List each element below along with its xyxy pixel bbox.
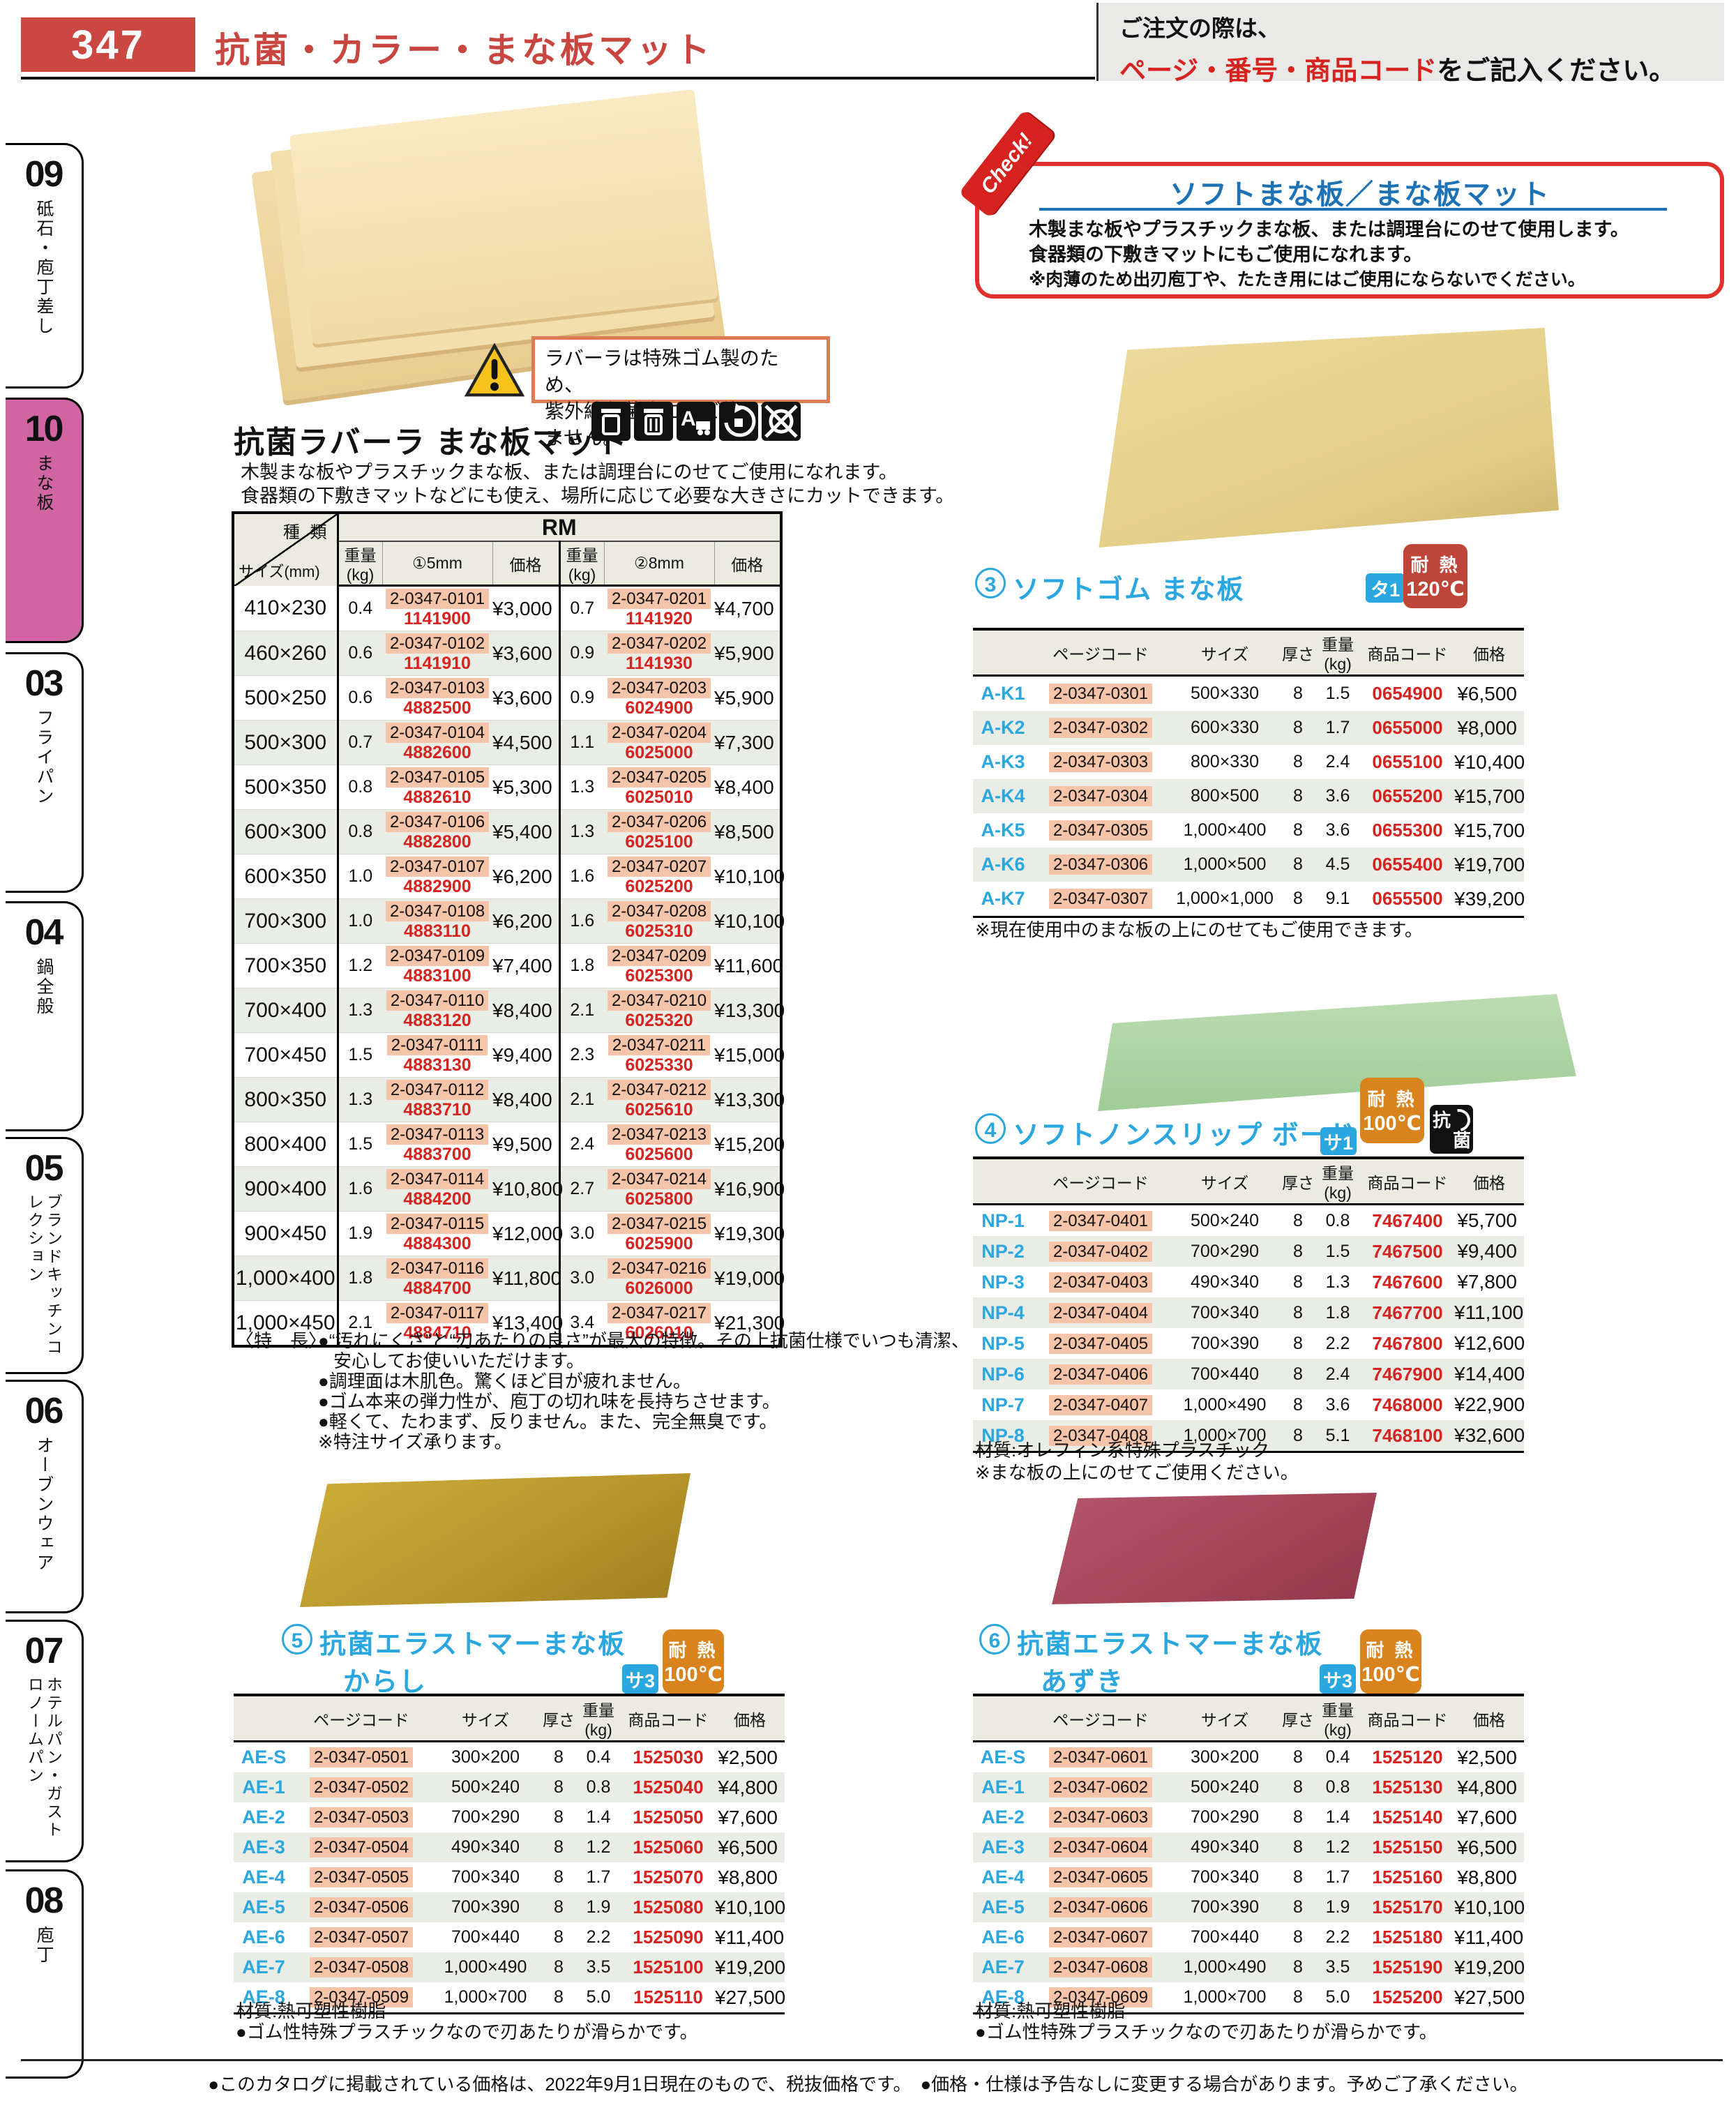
rubberlar-description: 木製まな板やプラスチックまな板、または調理台にのせてご使用になれます。 食器類の… [241, 460, 954, 508]
code-cell-8mm: 2-0347-02136025600 [604, 1122, 714, 1167]
size-row: 900×450 1.9 2-0347-01154884300 ¥12,000 3… [233, 1212, 781, 1256]
code-cell-8mm: 2-0347-02011141920 [604, 586, 714, 631]
azuki-table: ページコード サイズ 厚さ 重量(kg) 商品コード 価格 AE-S 2-034… [973, 1694, 1525, 2014]
section5-subtitle: からし [343, 1660, 427, 1698]
product-row: AE-7 2-0347-0508 1,000×490 8 3.5 1525100… [234, 1952, 785, 1982]
code-cell-5mm: 2-0347-01154884300 [382, 1212, 492, 1256]
size-row: 600×350 1.0 2-0347-01074882900 ¥6,200 1.… [233, 854, 781, 899]
heat-resistant-100-badge: 耐 熱 100℃ [663, 1629, 724, 1694]
size-row: 700×300 1.0 2-0347-01084883110 ¥6,200 1.… [233, 899, 781, 944]
code-cell-8mm: 2-0347-02066025100 [604, 810, 714, 854]
code-cell-8mm: 2-0347-02086025310 [604, 899, 714, 944]
order-note-line2: ページ・番号・商品コードをご記入ください。 [1119, 49, 1724, 87]
no-uv-recycle-icon [762, 402, 801, 441]
sidebar-tab-06: 06 オーブンウェア [6, 1380, 84, 1613]
product-row: AE-S 2-0347-0601 300×200 8 0.4 1525120 ¥… [973, 1742, 1524, 1773]
product-row: AE-4 2-0347-0505 700×340 8 1.7 1525070 ¥… [234, 1862, 785, 1892]
sidebar-tab-09: 09 砥石・庖丁差し [6, 143, 84, 389]
code-cell-5mm: 2-0347-01124883710 [382, 1078, 492, 1122]
section4-title: ソフトノンスリップ ボード [1013, 1113, 1356, 1152]
code-cell-5mm: 2-0347-01011141900 [382, 586, 492, 631]
code-cell-8mm: 2-0347-02156025900 [604, 1212, 714, 1256]
product-row: NP-7 2-0347-0407 1,000×490 8 3.6 7468000… [973, 1389, 1524, 1420]
order-note-box: ご注文の際は、 ページ・番号・商品コードをご記入ください。 [1096, 3, 1724, 81]
product-row: AE-4 2-0347-0605 700×340 8 1.7 1525160 ¥… [973, 1862, 1524, 1892]
column-header-row: ページコード サイズ 厚さ 重量(kg) 商品コード 価格 [973, 1695, 1524, 1742]
karashi-table: ページコード サイズ 厚さ 重量(kg) 商品コード 価格 AE-S 2-034… [234, 1694, 786, 2014]
code-cell-8mm: 2-0347-02056025010 [604, 765, 714, 810]
product-row: AE-6 2-0347-0507 700×440 8 2.2 1525090 ¥… [234, 1922, 785, 1952]
features-list: 〈特 長〉 ●“汚れにくさ”と“刃あたりの良さ”が最大の特徴。その上抗菌仕様でい… [236, 1331, 969, 1452]
product-row: AE-3 2-0347-0504 490×340 8 1.2 1525060 ¥… [234, 1832, 785, 1862]
product-row: AE-3 2-0347-0604 490×340 8 1.2 1525150 ¥… [973, 1832, 1524, 1862]
column-header-row: ページコード サイズ 厚さ 重量(kg) 商品コード 価格 [973, 629, 1524, 676]
code-cell-5mm: 2-0347-01164884700 [382, 1256, 492, 1301]
nonslip-product-image [1088, 994, 1576, 1111]
product-row: A-K7 2-0347-0307 1,000×1,000 8 9.1 06555… [973, 882, 1524, 917]
product-row: AE-7 2-0347-0608 1,000×490 8 3.5 1525190… [973, 1952, 1524, 1982]
size-row: 500×300 0.7 2-0347-01044882600 ¥4,500 1.… [233, 721, 781, 765]
karashi-texture-note: ●ゴム性特殊プラスチックなので刃あたりが滑らかです。 [236, 2021, 698, 2043]
heat-resistant-100-badge: 耐 熱 100℃ [1360, 1078, 1424, 1143]
sidebar-tab-10-active: 10 まな板 [6, 398, 84, 643]
size-row: 700×400 1.3 2-0347-01104883120 ¥8,400 2.… [233, 988, 781, 1033]
svg-text:A: A [681, 407, 696, 430]
check-title-underline [1039, 208, 1667, 211]
code-cell-8mm: 2-0347-02096025300 [604, 944, 714, 988]
size-row: 500×350 0.8 2-0347-01054882610 ¥5,300 1.… [233, 765, 781, 810]
size-row: 700×350 1.2 2-0347-01094883100 ¥7,400 1.… [233, 944, 781, 988]
product-row: A-K4 2-0347-0304 800×500 8 3.6 0655200 ¥… [973, 779, 1524, 813]
code-cell-5mm: 2-0347-01144884200 [382, 1167, 492, 1212]
softgum-product-image [1085, 328, 1559, 548]
section3-title: ソフトゴム まな板 [1013, 568, 1245, 606]
nonslip-material-note: 材質:オレフィン系特殊プラスチック [975, 1440, 1269, 1461]
column-header-row: ページコード サイズ 厚さ 重量(kg) 商品コード 価格 [973, 1158, 1524, 1205]
product-row: NP-5 2-0347-0405 700×390 8 2.2 7467800 ¥… [973, 1328, 1524, 1359]
a-transport-icon: A [677, 402, 716, 441]
sorted-bin-icon [634, 402, 673, 441]
section6-subtitle: あずき [1041, 1660, 1124, 1698]
code-cell-8mm: 2-0347-02146025800 [604, 1167, 714, 1212]
footer-note: ●このカタログに掲載されている価格は、2022年9月1日現在のもので、税抜価格で… [0, 2070, 1736, 2096]
features-label: 〈特 長〉 [236, 1331, 318, 1452]
size-row: 800×400 1.5 2-0347-01134883700 ¥9,500 2.… [233, 1122, 781, 1167]
azuki-material-note: 材質:熱可塑性樹脂 [975, 2000, 1125, 2022]
karashi-material-note: 材質:熱可塑性樹脂 [236, 2000, 386, 2022]
code-cell-8mm: 2-0347-02046025000 [604, 721, 714, 765]
rubberlar-price-table: 種 類 サイズ(mm) RM 重量(kg) ①5mm 価格 重量(kg) ②8m… [232, 511, 784, 1348]
heat-resistant-100-badge: 耐 熱 100℃ [1360, 1629, 1421, 1694]
section6-title: 抗菌エラストマーまな板 [1017, 1622, 1323, 1661]
size-row: 410×230 0.4 2-0347-01011141900 ¥3,000 0.… [233, 586, 781, 631]
product-row: A-K5 2-0347-0305 1,000×400 8 3.6 0655300… [973, 813, 1524, 847]
series-header: RM [338, 513, 781, 541]
check-title: ソフトまな板／まな板マット [1116, 172, 1604, 212]
azuki-product-image [1052, 1493, 1377, 1604]
sidebar-tab-03: 03 フライパン [6, 652, 84, 893]
header-divider [21, 77, 1095, 80]
section3-number: 3 [975, 568, 1006, 598]
code-cell-5mm: 2-0347-01094883100 [382, 944, 492, 988]
azuki-texture-note: ●ゴム性特殊プラスチックなので刃あたりが滑らかです。 [975, 2021, 1437, 2043]
product-row: NP-4 2-0347-0404 700×340 8 1.8 7467700 ¥… [973, 1297, 1524, 1328]
catalog-page: 347 抗菌・カラー・まな板マット ご注文の際は、 ページ・番号・商品コードをご… [0, 0, 1736, 2110]
sidebar-tab-05: 05 ブランドキッチンコレクション [6, 1137, 84, 1374]
code-cell-8mm: 2-0347-02126025610 [604, 1078, 714, 1122]
size-row: 900×400 1.6 2-0347-01144884200 ¥10,800 2… [233, 1167, 781, 1212]
product-row: AE-2 2-0347-0603 700×290 8 1.4 1525140 ¥… [973, 1802, 1524, 1832]
section5-title: 抗菌エラストマーまな板 [319, 1622, 626, 1661]
uv-warning-box: ラバーラは特殊ゴム製のため、 紫外線殺菌庫にはご使用できません。 [531, 336, 830, 403]
category-badge-sa1: サ1 [1320, 1127, 1357, 1155]
footer-divider [21, 2059, 1723, 2061]
code-cell-8mm: 2-0347-02106025320 [604, 988, 714, 1033]
code-cell-5mm: 2-0347-01021141910 [382, 631, 492, 676]
page-number: 347 [21, 17, 195, 72]
product-row: AE-1 2-0347-0502 500×240 8 0.8 1525040 ¥… [234, 1772, 785, 1802]
karashi-product-image [300, 1473, 690, 1607]
product-row: A-K3 2-0347-0303 800×330 8 2.4 0655100 ¥… [973, 745, 1524, 779]
warning-triangle-icon [465, 343, 524, 398]
product-row: AE-5 2-0347-0606 700×390 8 1.9 1525170 ¥… [973, 1892, 1524, 1922]
code-cell-8mm: 2-0347-02166026000 [604, 1256, 714, 1301]
category-badge-ta1: タ1 [1366, 573, 1405, 603]
product-row: NP-2 2-0347-0402 700×290 8 1.5 7467500 ¥… [973, 1236, 1524, 1267]
product-icon-row: A [591, 402, 801, 441]
antibacterial-icon: 抗菌 [1430, 1105, 1473, 1154]
size-row: 800×350 1.3 2-0347-01124883710 ¥8,400 2.… [233, 1078, 781, 1122]
code-cell-5mm: 2-0347-01134883700 [382, 1122, 492, 1167]
size-row: 1,000×400 1.8 2-0347-01164884700 ¥11,800… [233, 1256, 781, 1301]
product-row: NP-6 2-0347-0406 700×440 8 2.4 7467900 ¥… [973, 1359, 1524, 1389]
product-row: A-K6 2-0347-0306 1,000×500 8 4.5 0655400… [973, 847, 1524, 882]
product-row: AE-6 2-0347-0607 700×440 8 2.2 1525180 ¥… [973, 1922, 1524, 1952]
column-header-row: ページコード サイズ 厚さ 重量(kg) 商品コード 価格 [234, 1695, 785, 1742]
code-cell-8mm: 2-0347-02116025330 [604, 1033, 714, 1078]
code-cell-5mm: 2-0347-01114883130 [382, 1033, 492, 1078]
sidebar-tab-04: 04 鍋全般 [6, 901, 84, 1131]
product-row: AE-1 2-0347-0602 500×240 8 0.8 1525130 ¥… [973, 1772, 1524, 1802]
code-cell-5mm: 2-0347-01034882500 [382, 676, 492, 721]
sidebar-tab-08: 08 庖丁 [6, 1869, 84, 2079]
code-cell-5mm: 2-0347-01064882800 [382, 810, 492, 854]
code-cell-5mm: 2-0347-01104883120 [382, 988, 492, 1033]
code-cell-5mm: 2-0347-01084883110 [382, 899, 492, 944]
trash-bin-icon [591, 402, 631, 441]
size-row: 700×450 1.5 2-0347-01114883130 ¥9,400 2.… [233, 1033, 781, 1078]
size-row: 500×250 0.6 2-0347-01034882500 ¥3,600 0.… [233, 676, 781, 721]
antibacterial-icon [719, 402, 758, 441]
code-cell-8mm: 2-0347-02036024900 [604, 676, 714, 721]
sidebar-tab-07: 07 ホテルパン・ガストロノームパン [6, 1620, 84, 1862]
heat-resistant-120-badge: 耐 熱 120℃ [1403, 544, 1467, 608]
code-cell-5mm: 2-0347-01054882610 [382, 765, 492, 810]
page-title: 抗菌・カラー・まな板マット [215, 22, 714, 73]
size-row: 600×300 0.8 2-0347-01064882800 ¥5,400 1.… [233, 810, 781, 854]
product-row: NP-1 2-0347-0401 500×240 8 0.8 7467400 ¥… [973, 1205, 1524, 1237]
category-badge-sa3: サ3 [622, 1664, 658, 1694]
section6-number: 6 [979, 1624, 1010, 1655]
order-note-line1: ご注文の際は、 [1119, 10, 1724, 43]
code-cell-5mm: 2-0347-01074882900 [382, 854, 492, 899]
product-row: NP-3 2-0347-0403 490×340 8 1.3 7467600 ¥… [973, 1267, 1524, 1297]
category-badge-sa3: サ3 [1320, 1664, 1356, 1694]
softgum-note: ※現在使用中のまな板の上にのせてもご使用できます。 [975, 919, 1423, 941]
nonslip-usage-note: ※まな板の上にのせてご使用ください。 [975, 1462, 1299, 1484]
section5-number: 5 [282, 1624, 312, 1655]
product-row: AE-2 2-0347-0503 700×290 8 1.4 1525050 ¥… [234, 1802, 785, 1832]
product-row: A-K2 2-0347-0302 600×330 8 1.7 0655000 ¥… [973, 711, 1524, 745]
code-cell-5mm: 2-0347-01044882600 [382, 721, 492, 765]
code-cell-8mm: 2-0347-02021141930 [604, 631, 714, 676]
code-cell-8mm: 2-0347-02076025200 [604, 854, 714, 899]
nonslip-table: ページコード サイズ 厚さ 重量(kg) 商品コード 価格 NP-1 2-034… [973, 1156, 1525, 1453]
product-row: AE-S 2-0347-0501 300×200 8 0.4 1525030 ¥… [234, 1742, 785, 1773]
product-row: AE-5 2-0347-0506 700×390 8 1.9 1525080 ¥… [234, 1892, 785, 1922]
product-row: A-K1 2-0347-0301 500×330 8 1.5 0654900 ¥… [973, 676, 1524, 711]
size-row: 460×260 0.6 2-0347-01021141910 ¥3,600 0.… [233, 631, 781, 676]
table-corner-cell: 種 類 サイズ(mm) [233, 513, 338, 586]
section4-number: 4 [975, 1113, 1006, 1144]
rubberlar-title: 抗菌ラバーラ まな板マット [234, 417, 628, 462]
softgum-table: ページコード サイズ 厚さ 重量(kg) 商品コード 価格 A-K1 2-034… [973, 628, 1525, 918]
